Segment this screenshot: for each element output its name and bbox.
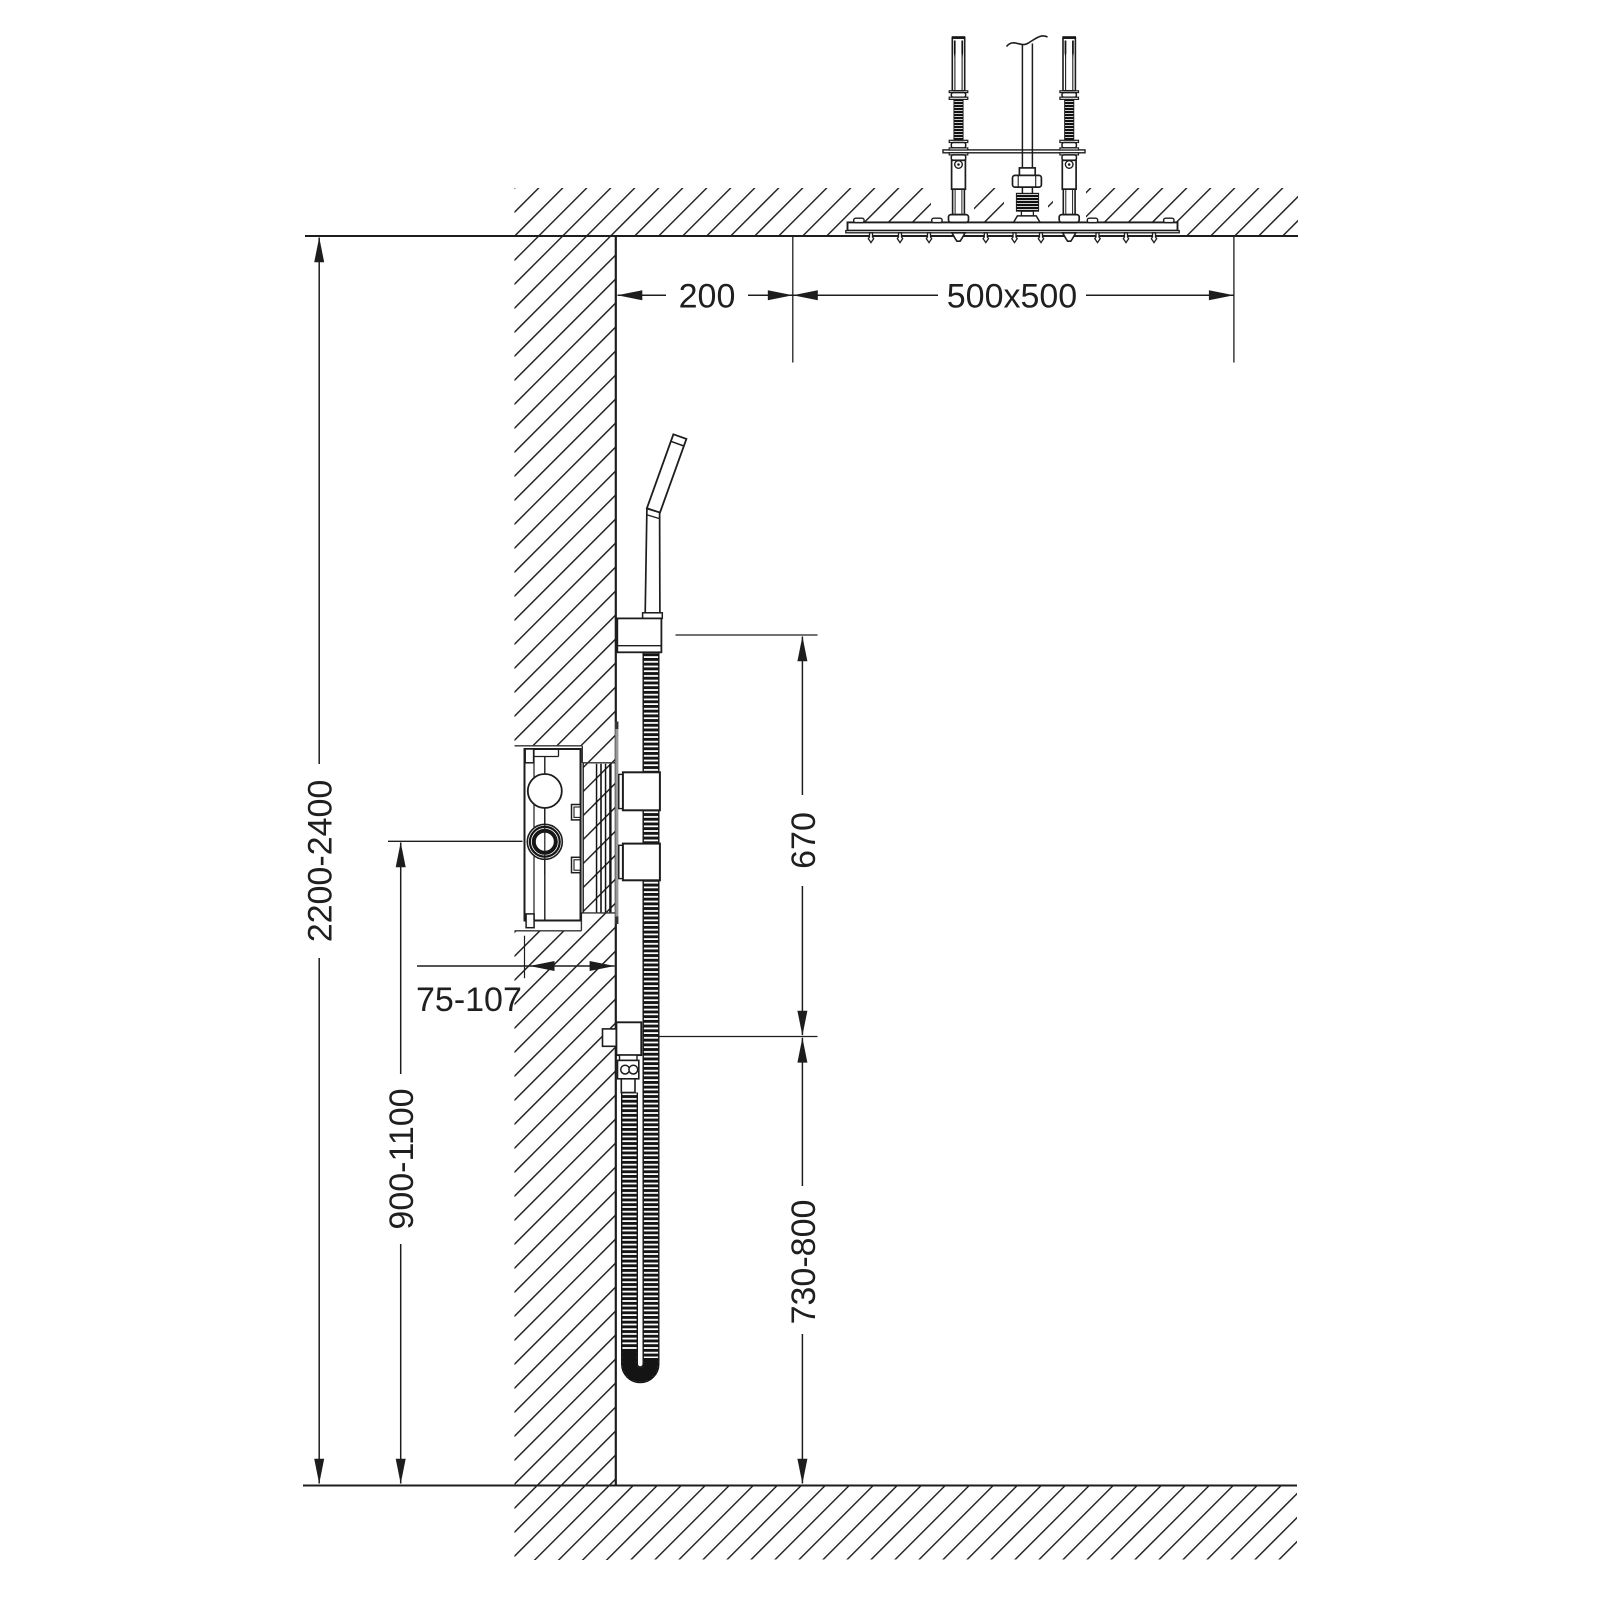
svg-text:2200-2400: 2200-2400 xyxy=(302,780,340,943)
svg-text:670: 670 xyxy=(785,812,823,869)
svg-text:900-1100: 900-1100 xyxy=(383,1088,421,1229)
svg-text:200: 200 xyxy=(679,278,736,316)
svg-text:730-800: 730-800 xyxy=(785,1200,823,1325)
svg-text:500x500: 500x500 xyxy=(947,278,1077,316)
svg-text:75-107: 75-107 xyxy=(416,981,522,1019)
